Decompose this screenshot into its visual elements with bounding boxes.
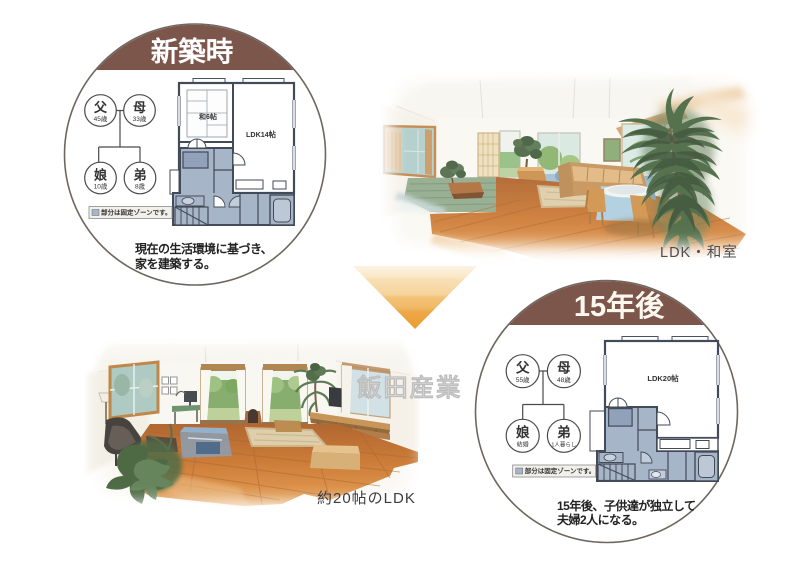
svg-text:娘: 娘 bbox=[516, 424, 530, 440]
svg-text:弟: 弟 bbox=[133, 168, 146, 183]
svg-text:夫婦2人になる。: 夫婦2人になる。 bbox=[556, 512, 644, 527]
svg-text:45歳: 45歳 bbox=[94, 114, 108, 123]
svg-text:8歳: 8歳 bbox=[135, 182, 146, 191]
svg-text:飯田産業: 飯田産業 bbox=[357, 373, 462, 402]
svg-text:娘: 娘 bbox=[94, 168, 108, 183]
svg-text:結婚: 結婚 bbox=[517, 441, 529, 449]
svg-text:家を建築する。: 家を建築する。 bbox=[135, 256, 216, 271]
svg-text:33歳: 33歳 bbox=[133, 114, 147, 123]
svg-text:父: 父 bbox=[515, 361, 530, 376]
svg-text:15年後、子供達が独立して: 15年後、子供達が独立して bbox=[557, 498, 696, 513]
svg-text:母: 母 bbox=[557, 361, 571, 376]
svg-text:和6帖: 和6帖 bbox=[198, 112, 217, 121]
svg-text:48歳: 48歳 bbox=[557, 375, 571, 384]
svg-text:約20帖のLDK: 約20帖のLDK bbox=[317, 490, 416, 507]
svg-text:15年後: 15年後 bbox=[574, 289, 665, 323]
svg-text:1人暮らし: 1人暮らし bbox=[551, 441, 576, 449]
svg-text:新築時: 新築時 bbox=[151, 36, 234, 67]
svg-text:部分は固定ゾーンです。: 部分は固定ゾーンです。 bbox=[525, 466, 596, 475]
svg-text:LDK・和室: LDK・和室 bbox=[660, 244, 738, 261]
svg-text:LDK14帖: LDK14帖 bbox=[246, 130, 277, 139]
svg-text:部分は固定ゾーンです。: 部分は固定ゾーンです。 bbox=[101, 208, 172, 217]
svg-text:母: 母 bbox=[133, 100, 146, 115]
svg-text:現在の生活環境に基づき、: 現在の生活環境に基づき、 bbox=[135, 241, 272, 256]
svg-text:LDK20帖: LDK20帖 bbox=[647, 373, 679, 383]
svg-text:弟: 弟 bbox=[557, 424, 571, 440]
svg-text:10歳: 10歳 bbox=[94, 182, 108, 191]
svg-text:55歳: 55歳 bbox=[516, 375, 530, 384]
svg-text:父: 父 bbox=[93, 100, 108, 115]
